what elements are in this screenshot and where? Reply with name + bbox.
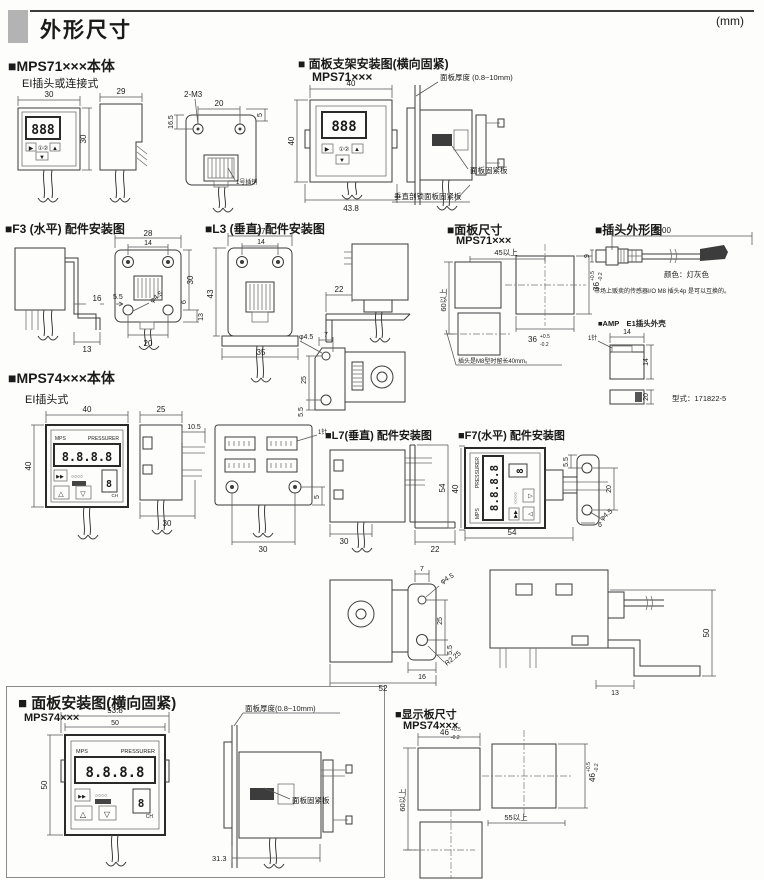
l3-plate-view: 27 14 43 35 xyxy=(206,227,298,382)
up-button-icon: △ xyxy=(58,491,64,498)
dim: 50 xyxy=(40,780,49,789)
down-arrow-button-icon: ▼ xyxy=(39,155,45,161)
down-button-icon: ▽ xyxy=(528,493,534,498)
dim: 30 xyxy=(163,519,172,528)
dim: 36 xyxy=(528,335,537,344)
plug-model: 型式：171822-5 xyxy=(672,393,726,403)
brand2-label: PRESSURER xyxy=(121,749,155,755)
dim: 5.5 xyxy=(563,457,570,467)
l3-side-view: 22 xyxy=(326,244,410,342)
mps74-front-view: MPS PRESSURER 8.8.8.8 ▶▶ ○○○○ 8 CH △ ▽ 4… xyxy=(24,405,128,539)
dim-tol-right: 36 +0.5 -0.2 xyxy=(590,271,604,291)
dim: 25 xyxy=(437,617,444,625)
plug-color-note: 颜色：灯灰色 xyxy=(664,269,709,279)
down-button-icon: ▽ xyxy=(80,491,86,498)
panel-thickness-label: 面板厚度(0.8~10mm) xyxy=(245,703,316,713)
panel74-display: 8.8.8.8 xyxy=(85,765,144,781)
dim: 40 xyxy=(451,484,460,493)
mps74-back-view: 1针 5 30 xyxy=(215,425,327,554)
dim: 20 xyxy=(215,99,224,108)
dim: 10.5 xyxy=(187,424,201,431)
mps71-display: 888 xyxy=(31,123,55,138)
fast-forward-button-icon: ▶▶ xyxy=(78,794,86,800)
ch-label: CH xyxy=(146,814,154,820)
led-indicators: ○○○○ xyxy=(513,492,519,504)
plug-compat-note: 市场上贩卖的传感器I/O M8 插头4p 是可以互换的。 xyxy=(594,287,730,295)
panel71-cutout: 45以上 36 +0.5 -0.2 60以上 36 +0.5 -0.2 插头是M… xyxy=(439,244,604,365)
dim: 20 xyxy=(643,393,650,401)
bracket71-display: 888 xyxy=(331,119,356,135)
dim: 52 xyxy=(379,684,388,693)
pin1-label: 1针 xyxy=(318,428,327,436)
dim: 43 xyxy=(206,289,215,298)
down-arrow-button-icon: ▼ xyxy=(339,158,345,164)
dim: 25 xyxy=(157,405,166,414)
dim: 30 xyxy=(340,537,349,546)
f3-side-view: 16 13 xyxy=(15,248,104,354)
pin-callout: 1号插销 xyxy=(236,178,257,186)
bracket71-note: 垂直剖锁面板固紧板 xyxy=(394,191,462,201)
mps71-side-view: 29 xyxy=(100,87,147,202)
svg-text:46: 46 xyxy=(588,773,597,782)
tol: -0.2 xyxy=(540,342,549,348)
dim: 29 xyxy=(117,87,126,96)
dim: 7 xyxy=(324,332,328,339)
ch-label: CH xyxy=(112,493,119,498)
dim: 53.8 xyxy=(107,706,123,715)
dim: 5.5 xyxy=(113,294,123,301)
dim: 22 xyxy=(431,545,440,554)
dim: 31.3 xyxy=(212,854,227,863)
amp-housing-title: ■AMP E1插头外壳 xyxy=(598,318,666,328)
svg-text:-0.2: -0.2 xyxy=(594,763,600,772)
dim: 45以上 xyxy=(494,248,518,257)
dim: 20 xyxy=(144,339,153,348)
pin1-label: 1针 xyxy=(588,334,597,342)
dim: 30 xyxy=(186,275,195,284)
dim: 60以上 xyxy=(439,288,448,312)
tol: +0.5 xyxy=(540,334,550,340)
dim: 40 xyxy=(83,405,92,414)
dim: 22 xyxy=(335,285,344,294)
f7-bracket-side-view: 13 50 xyxy=(490,570,716,697)
dim: 16 xyxy=(418,674,426,681)
fast-forward-button-icon: ▶▶ xyxy=(513,510,519,518)
dimension-sheet: 外形尺寸 (mm) ■MPS71×××本体 EI插头或连接式 ■ 面板支架安装图… xyxy=(0,0,764,880)
dim: 7 xyxy=(420,566,424,573)
ch-display: 8 xyxy=(106,479,112,490)
svg-text:+0.5: +0.5 xyxy=(590,271,596,281)
dim: 14 xyxy=(257,239,265,246)
up-button-icon: △ xyxy=(80,810,87,819)
dim: 54 xyxy=(438,483,447,492)
dim: 9 xyxy=(584,254,591,258)
dim: 40 xyxy=(287,136,296,145)
dim: 14 xyxy=(623,329,631,336)
panel74-side-view: 面板厚度(0.8~10mm) 面板固紧板 31.3 xyxy=(212,703,352,868)
panel-thickness-label: 面板厚度 (0.8~10mm) xyxy=(440,72,513,82)
f3-plate-view: 28 14 30 13 6 5.5 φ4.5 20 xyxy=(113,229,205,350)
mps71-back-view: 2-M3 20 16.5 5 1号插销 xyxy=(168,90,268,212)
dim: 13 xyxy=(83,345,92,354)
panel74-front-view: MPS PRESSURER 8.8.8.8 ▶▶ ○○○○ 8 CH △ ▽ 5… xyxy=(40,706,169,866)
dim: 14 xyxy=(643,358,650,366)
dim: 35 xyxy=(257,348,266,357)
dim: 16.5 xyxy=(168,115,175,129)
right-arrow-button-icon: ▶ xyxy=(325,147,330,153)
svg-text:+0.5: +0.5 xyxy=(586,762,592,772)
led-indicators: ①② xyxy=(339,146,350,153)
dim: 50 xyxy=(702,628,711,637)
dim: 5 xyxy=(314,495,321,499)
dim: 2000 xyxy=(653,226,671,235)
led-indicators: ①② xyxy=(38,145,49,152)
dim: 16 xyxy=(93,294,102,303)
tol: -0.2 xyxy=(451,735,460,741)
dim: 43.8 xyxy=(343,204,359,213)
dim: 6 xyxy=(181,300,188,304)
dim: 13 xyxy=(611,690,619,697)
brand2-label: PRESSURER xyxy=(475,457,481,489)
dim: 25 xyxy=(301,376,308,384)
led-indicators: ○○○○ xyxy=(71,474,83,480)
dim: 20 xyxy=(606,485,613,493)
f7-view: MPS PRESSURER 8.8.8.8 ▶▶ ○○○○ 8 △ ▽ 4 xyxy=(451,446,618,541)
l7-view: 30 22 54 xyxy=(330,445,455,554)
dim: 6 xyxy=(598,522,602,529)
mps74-side-view: 25 10.5 30 xyxy=(140,405,205,534)
dim: 54 xyxy=(508,528,517,537)
dim: 30 xyxy=(259,545,268,554)
brand-label: MPS xyxy=(475,508,481,520)
mps74-display: 8.8.8.8 xyxy=(62,450,113,464)
mps71-front-view: 888 ▶ ①② ▲ ▼ 30 30 xyxy=(18,90,92,202)
dim: 40 xyxy=(347,79,356,88)
brand-label: MPS xyxy=(76,749,88,755)
plug-outline: 2000 9 颜色：灯灰色 市场上贩卖的传感器I/O M8 插头4p 是可以互换… xyxy=(584,226,752,404)
bracket71-side-view: 面板厚度 (0.8~10mm) 面板固紧板 垂直剖锁面板固紧板 xyxy=(392,72,513,210)
dim: φ4.5 xyxy=(299,334,313,341)
f7-display: 8.8.8.8 xyxy=(488,465,501,511)
fast-forward-button-icon: ▶▶ xyxy=(56,474,64,480)
led-indicators: ○○○○ xyxy=(95,793,107,799)
dim: φ4.5 xyxy=(440,572,456,585)
dim: 5 xyxy=(257,113,264,117)
ch-display: 8 xyxy=(516,468,526,473)
brand-label: MPS xyxy=(55,436,67,442)
l3-bottom-view: 7 φ4.5 25 5.5 xyxy=(298,332,405,417)
drawings-canvas: 888 ▶ ①② ▲ ▼ 30 30 29 xyxy=(0,0,764,880)
svg-text:-0.2: -0.2 xyxy=(598,272,604,281)
panel71-note: 插头是M8型时留长40mm。 xyxy=(458,357,531,365)
fix-plate-label: 面板固紧板 xyxy=(470,165,508,175)
brand2-label: PRESSURER xyxy=(88,436,120,442)
display74-cutout: 46 +0.5 -0.2 46 +0.5 -0.2 60以上 55以上 xyxy=(398,727,600,879)
dim: 28 xyxy=(144,229,153,238)
fix-plate-label: 面板固紧板 xyxy=(292,795,330,805)
dim: 46 xyxy=(440,728,449,737)
up-arrow-button-icon: ▲ xyxy=(354,147,360,153)
f7-bottom-view: 7 φ4.5 25 5.5 16 52 R2.25 xyxy=(330,566,463,693)
right-arrow-button-icon: ▶ xyxy=(29,146,34,152)
dim: 55以上 xyxy=(504,813,528,822)
down-button-icon: ▽ xyxy=(104,810,111,819)
dim: 50 xyxy=(111,720,119,727)
up-arrow-button-icon: ▲ xyxy=(52,146,58,152)
dim: 13 xyxy=(198,313,205,321)
ch-display: 8 xyxy=(138,797,145,810)
dim: 14 xyxy=(144,240,152,247)
dim: 27 xyxy=(257,227,266,236)
dim: 60以上 xyxy=(398,788,407,812)
dim: 5.5 xyxy=(298,407,305,417)
dim: 40 xyxy=(24,461,33,470)
tol: +0.5 xyxy=(451,727,461,733)
bracket71-front-view: 888 ▶ ①② ▲ ▼ 40 40 43.8 xyxy=(287,79,397,213)
up-button-icon: △ xyxy=(528,511,534,516)
dim-tol-right: 46 +0.5 -0.2 xyxy=(586,762,600,782)
screw-callout: 2-M3 xyxy=(184,90,203,99)
dim: 30 xyxy=(45,90,54,99)
dim: 30 xyxy=(79,134,88,143)
